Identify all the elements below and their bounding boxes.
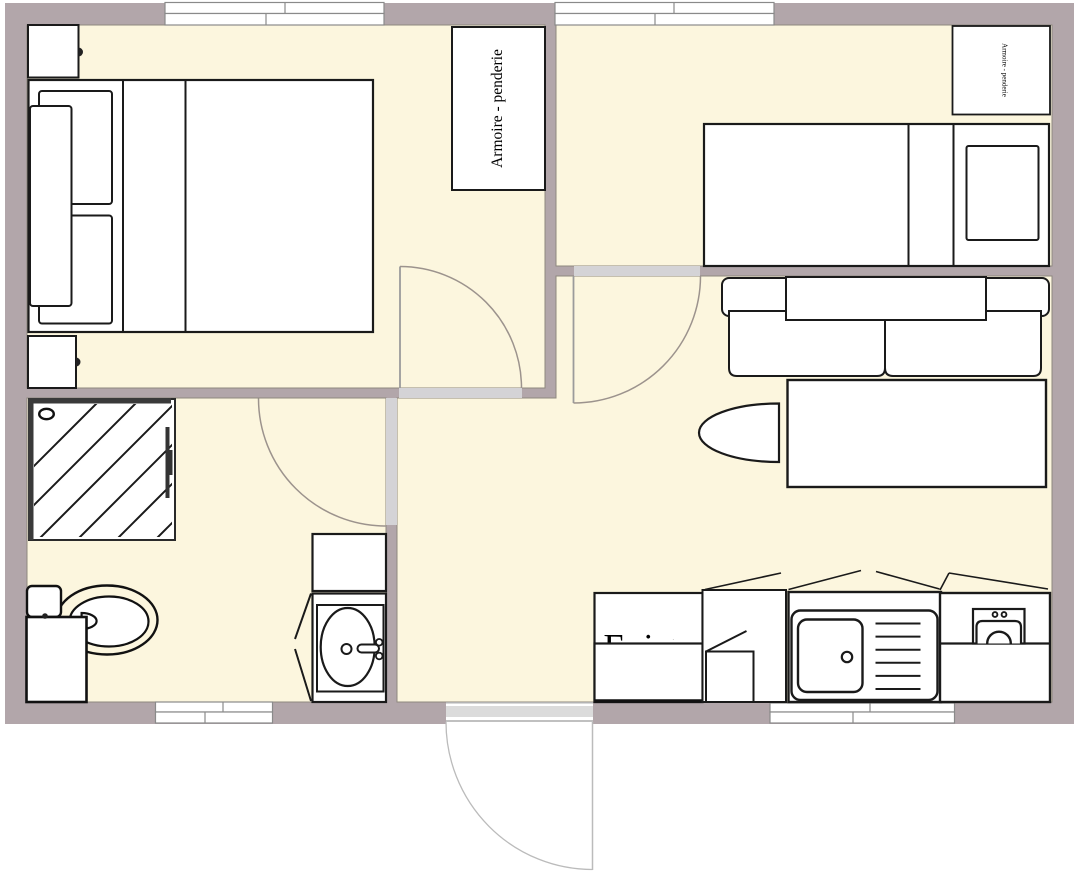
- svg-text:Armoire - penderie: Armoire - penderie: [1000, 43, 1008, 97]
- svg-text:Armoire - penderie: Armoire - penderie: [489, 49, 506, 168]
